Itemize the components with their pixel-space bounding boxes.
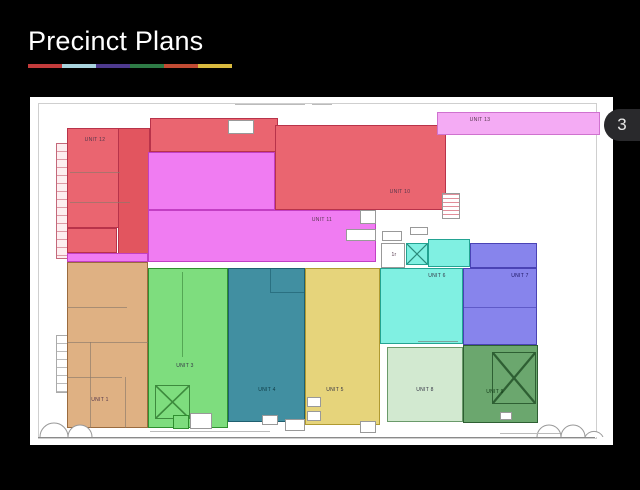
wall-line [67, 377, 122, 378]
red-top-bar-region [150, 118, 278, 152]
unit-label: UNIT 12 [70, 137, 120, 143]
unit-11-region-upper [148, 152, 275, 210]
stair-box [442, 193, 460, 219]
wall-line [125, 377, 126, 428]
drawing-title-text [312, 104, 332, 105]
lobby-box [346, 229, 376, 241]
green-pod-box [173, 415, 189, 429]
unit-1-region [67, 262, 148, 428]
unit-12-core-region [118, 128, 150, 255]
rooflight-box [228, 120, 254, 134]
room-label: 1r [384, 252, 404, 258]
wall-line [182, 272, 183, 357]
tree-icon [38, 415, 108, 437]
unit-11-region-sliver [67, 253, 148, 262]
page-title: Precinct Plans [28, 26, 203, 57]
unit-label: UNIT 3 [160, 363, 210, 369]
accent-segment-red [28, 64, 62, 68]
cross-bay-box [155, 385, 190, 419]
cross-brace-icon [493, 353, 535, 403]
dock-box [500, 412, 512, 420]
plant-room-box [406, 243, 428, 265]
site-boundary-line [38, 437, 595, 438]
accent-segment-purple [96, 64, 130, 68]
dock-box [360, 421, 376, 433]
wall-line [67, 342, 148, 343]
unit-6-region [380, 268, 463, 344]
lobby-box [382, 231, 402, 241]
stair-room-box: 1r [381, 243, 405, 268]
dock-box [285, 419, 305, 431]
slide: Precinct Plans 3 UNIT 12 UNIT 10 UNIT 11 [0, 0, 640, 490]
unit-10-region [275, 125, 446, 210]
unit-12-region-lower [67, 228, 117, 253]
dimension-line [418, 341, 458, 342]
drawing-title-text [235, 104, 305, 105]
wall-line [270, 268, 271, 292]
lobby-box [410, 227, 428, 235]
unit-label: UNIT 13 [450, 117, 510, 123]
unit-label: UNIT 10 [370, 189, 430, 195]
accent-segment-yellow [198, 64, 232, 68]
unit-label: UNIT 7 [495, 273, 545, 279]
title-accent-bar [28, 64, 232, 68]
unit-label: UNIT 5 [310, 387, 360, 393]
wall-line [70, 172, 120, 173]
wall-line [67, 307, 127, 308]
wall-line [463, 307, 537, 308]
unit-label: UNIT 8 [400, 387, 450, 393]
white-notch-box [360, 210, 376, 224]
dock-box [307, 397, 321, 407]
dock-box [190, 413, 212, 429]
wall-line [270, 292, 305, 293]
cross-brace-icon [156, 386, 189, 418]
accent-segment-green [130, 64, 164, 68]
cross-bay-box [492, 352, 536, 404]
precinct-plan-image: UNIT 12 UNIT 10 UNIT 11 UNIT 13 1r [30, 97, 613, 445]
cross-brace-icon [407, 244, 427, 264]
unit-7-region-upper [470, 243, 537, 268]
wall-line [70, 202, 130, 203]
unit-label: UNIT 11 [292, 217, 352, 223]
boundary-note-text [500, 433, 560, 434]
dock-box [307, 411, 321, 421]
unit-label: UNIT 6 [412, 273, 462, 279]
unit-13-region [437, 112, 600, 135]
unit-label: UNIT 1 [75, 397, 125, 403]
unit-6-region-upper [428, 239, 470, 267]
unit-label: UNIT 9 [470, 389, 520, 395]
unit-label: UNIT 4 [242, 387, 292, 393]
page-number-badge: 3 [604, 109, 640, 141]
accent-segment-orange [164, 64, 198, 68]
dock-box [262, 415, 278, 425]
unit-8-region [387, 347, 463, 422]
accent-segment-lightblue [62, 64, 96, 68]
boundary-note-text [150, 431, 270, 432]
